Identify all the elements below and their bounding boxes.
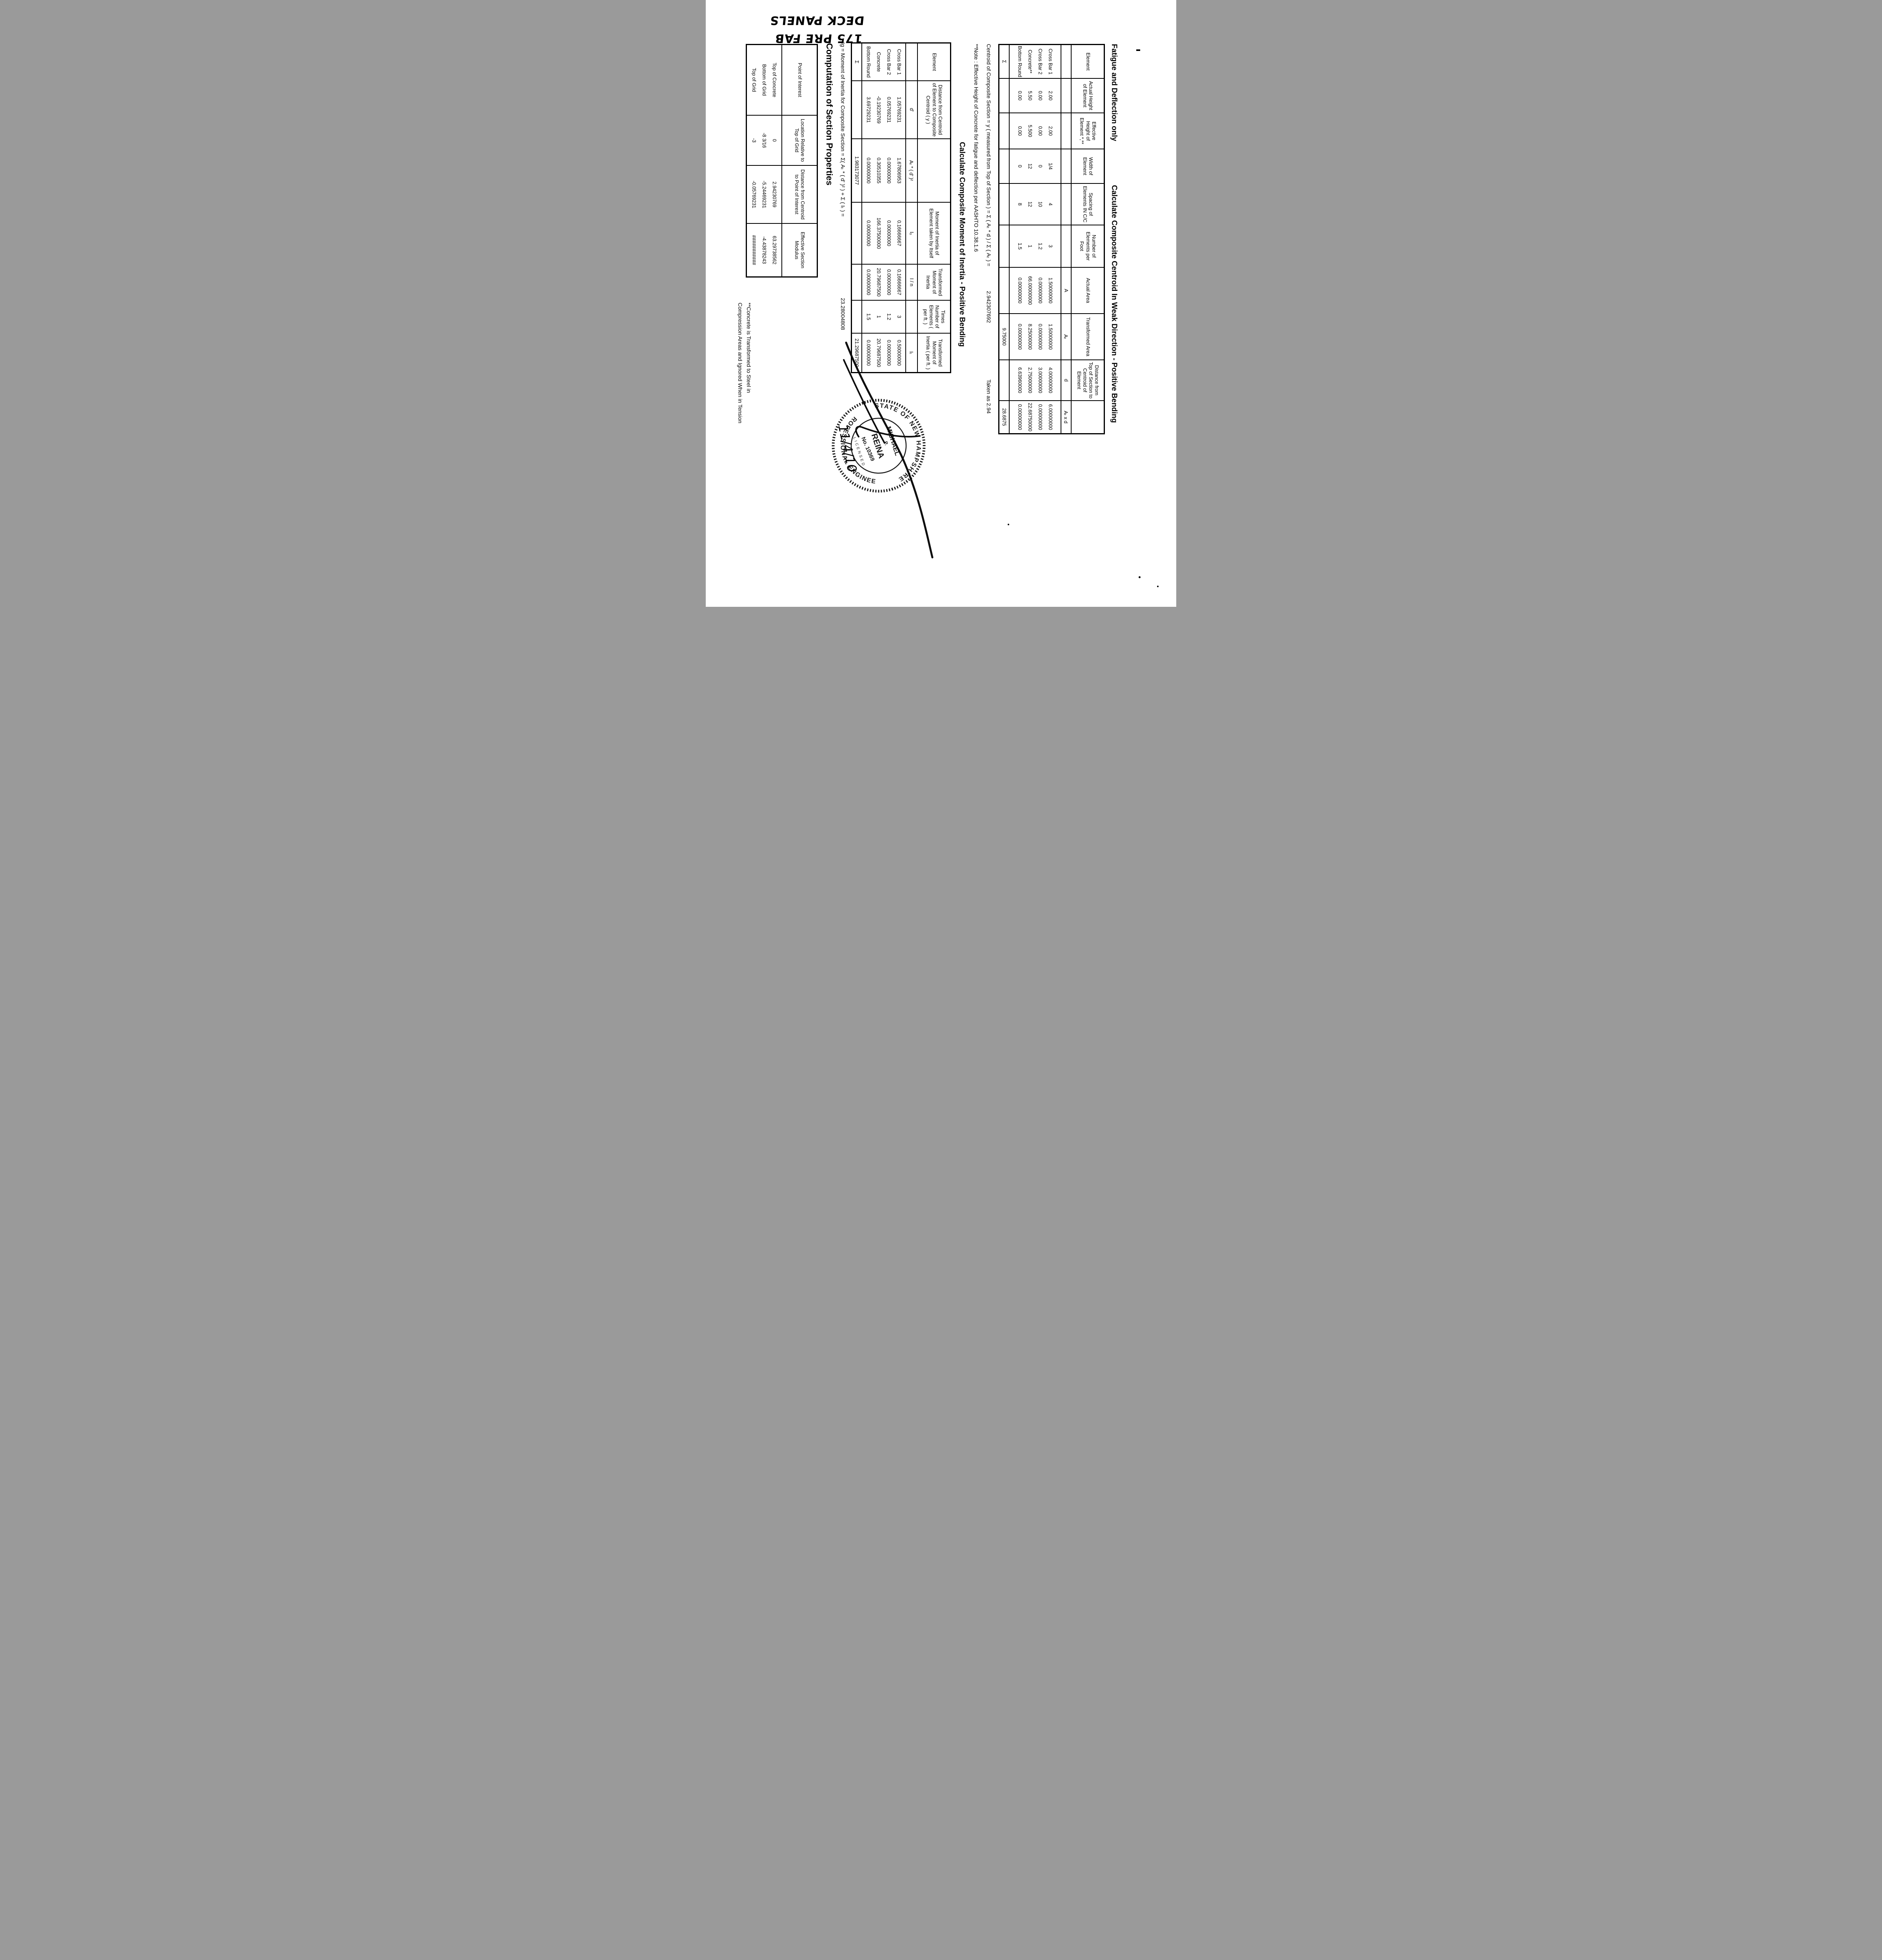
cell: 0.00 bbox=[1035, 113, 1045, 149]
t2-col-i-over-n: Transformed Moment of Inertia I / n 0.16… bbox=[852, 265, 950, 301]
cell: 3.00000000 bbox=[1035, 360, 1045, 400]
t3-col-distance: Distance from Centroid to Point of Inter… bbox=[747, 166, 817, 224]
svg-text:PROFESSIONAL ENGINEER: PROFESSIONAL ENGINEER bbox=[813, 337, 943, 493]
scan-speck bbox=[1139, 576, 1141, 578]
cell: 0.00000000 bbox=[1035, 314, 1045, 359]
data-cell: 3 1.2 1 1.5 bbox=[1009, 225, 1061, 267]
cell: 0.00 bbox=[1015, 113, 1025, 149]
cell: 6.00000000 bbox=[1045, 401, 1055, 433]
column-header: Width of Element bbox=[1071, 149, 1104, 183]
cell: 2.00 bbox=[1045, 79, 1055, 113]
data-cell: 2.00 0.00 5.500 0.00 bbox=[1009, 113, 1061, 149]
cell: 66.00000000 bbox=[1025, 268, 1035, 313]
cell: 0.00000000 bbox=[1015, 268, 1025, 313]
cell: 0.16666667 bbox=[894, 265, 904, 300]
title-section-properties: Computation of Section Properties bbox=[824, 43, 834, 185]
t3-col-location: Location Relative to Top of Grid 0 -8 3/… bbox=[747, 116, 817, 166]
t1-col-element: Element Cross Bar 1 Cross Bar 2 Concrete… bbox=[999, 45, 1104, 79]
sigma-cell bbox=[852, 265, 861, 300]
cell: 1.2 bbox=[884, 301, 894, 333]
column-header: Actual Height of Element bbox=[1071, 79, 1104, 113]
cell: 0.16666667 bbox=[894, 203, 904, 264]
cell: 0 bbox=[769, 116, 779, 165]
data-cell: 1.67806953 0.00000000 0.30510355 0.00000… bbox=[861, 139, 905, 202]
symbol-cell: d' bbox=[905, 81, 917, 138]
data-cell: 1/4 0 12 0 bbox=[1009, 149, 1061, 183]
t1-col-spacing: Spacing of Elements IN C/C 4 10 12 8 bbox=[999, 184, 1104, 225]
column-header: Element bbox=[1071, 45, 1104, 78]
cell: Concrete** bbox=[1025, 45, 1035, 78]
cell: 3 bbox=[894, 301, 904, 333]
t1-col-effective-height: Effective Height of Element *,** 2.00 0.… bbox=[999, 113, 1104, 149]
cell: 0.05769231 bbox=[884, 81, 894, 138]
t1-col-width: Width of Element 1/4 0 12 0 bbox=[999, 149, 1104, 184]
cell: Top of Concrete bbox=[769, 45, 779, 115]
cell: 1.5 bbox=[1015, 225, 1025, 267]
ig-equation: Ig = Moment of Inertia for Composite Sec… bbox=[839, 42, 846, 217]
cell: Concrete bbox=[874, 44, 884, 80]
symbol-cell bbox=[1061, 113, 1071, 149]
cell: 20.79687500 bbox=[874, 265, 884, 300]
column-header: Moment of Inertia of Element taken by It… bbox=[917, 203, 950, 264]
cell: 0.00000000 bbox=[884, 265, 894, 300]
title-fatigue: Fatigue and Deflection only bbox=[1110, 44, 1118, 141]
cell: 8 bbox=[1015, 184, 1025, 225]
t1-col-number-per-foot: Number of Elements per Foot 3 1.2 1 1.5 bbox=[999, 225, 1104, 268]
note-line-1: 175 PRE FAB bbox=[708, 29, 863, 47]
sigma-cell bbox=[999, 360, 1009, 400]
handwritten-note: 175 PRE FAB DECK PANELS bbox=[708, 11, 865, 47]
sigma-cell: 9.75000 bbox=[999, 314, 1009, 359]
cell: 0.00000000 bbox=[863, 265, 874, 300]
sigma-cell: Σ bbox=[999, 45, 1009, 78]
cell: 0.00 bbox=[1015, 79, 1025, 113]
sigma-cell bbox=[999, 268, 1009, 313]
data-cell: 4 10 12 8 bbox=[1009, 184, 1061, 225]
concrete-footnote-line2: Compression Areas and Ignored When in Te… bbox=[737, 303, 743, 423]
cell: 0.00000000 bbox=[884, 203, 894, 264]
data-cell: 1.50000000 0.00000000 8.25000000 0.00000… bbox=[1009, 314, 1061, 359]
symbol-cell bbox=[905, 44, 917, 80]
cell: 1.50000000 bbox=[1045, 314, 1055, 359]
cell: Cross Bar 2 bbox=[1035, 45, 1045, 78]
cell: 0.00000000 bbox=[1015, 401, 1025, 433]
note-line-2: DECK PANELS bbox=[710, 11, 865, 29]
cell: Bottom of Grid bbox=[759, 45, 769, 115]
cell: 0 bbox=[1015, 149, 1025, 183]
data-cell: 0.16666667 0.00000000 166.37500000 0.000… bbox=[861, 203, 905, 264]
table-composite-centroid: Element Cross Bar 1 Cross Bar 2 Concrete… bbox=[998, 44, 1105, 434]
data-cell: 6.00000000 0.00000000 22.68750000 0.0000… bbox=[1009, 401, 1061, 433]
cell: 0.00000000 bbox=[1035, 401, 1045, 433]
data-cell: 0 -8 3/16 -3 bbox=[747, 116, 781, 165]
cell: 0.00000000 bbox=[1015, 314, 1025, 359]
sigma-cell bbox=[852, 301, 861, 333]
cell: 1.05769231 bbox=[894, 81, 904, 138]
data-cell: 0.16666667 0.00000000 20.79687500 0.0000… bbox=[861, 265, 905, 300]
cell: 1.50000000 bbox=[1045, 268, 1055, 313]
cell: 1 bbox=[874, 301, 884, 333]
column-header: Transformed Moment of Inertia bbox=[917, 265, 950, 300]
data-cell: 1.50000000 0.00000000 66.00000000 0.0000… bbox=[1009, 268, 1061, 313]
column-header: Distance from Top of Section to Centroid… bbox=[1071, 360, 1104, 400]
cell: -0.05769231 bbox=[749, 166, 759, 223]
cell: Cross Bar 1 bbox=[1045, 45, 1055, 78]
cell: -3 bbox=[749, 116, 759, 165]
column-header: Times Number of Elements ( per ft. ) bbox=[917, 301, 950, 333]
t1-col-actual-area: Actual Area A 1.50000000 0.00000000 66.0… bbox=[999, 268, 1104, 314]
t3-col-section-modulus: Effective Section Modulus 63.29738562 -4… bbox=[747, 224, 817, 276]
cell: 4.00000000 bbox=[1045, 360, 1055, 400]
ig-value: 23.28004808 bbox=[840, 298, 846, 330]
cell: 1/4 bbox=[1045, 149, 1055, 183]
t2-col-element: Element Cross Bar 1 Cross Bar 2 Concrete… bbox=[852, 44, 950, 81]
cell: Bottom Round bbox=[863, 44, 874, 80]
symbol-cell bbox=[1061, 225, 1071, 267]
column-header: Distance from Centroid to Point of Inter… bbox=[781, 166, 817, 223]
cell: -8 3/16 bbox=[759, 116, 769, 165]
scan-speck bbox=[1157, 586, 1159, 587]
cell: 22.68750000 bbox=[1025, 401, 1035, 433]
t2-col-io: Moment of Inertia of Element taken by It… bbox=[852, 203, 950, 265]
cell: 3.69729231 bbox=[863, 81, 874, 138]
cell: 0.00000000 bbox=[863, 203, 874, 264]
scan-speck bbox=[1008, 524, 1009, 525]
data-cell: Cross Bar 1 Cross Bar 2 Concrete Bottom … bbox=[861, 44, 905, 80]
cell: 0.00 bbox=[1035, 79, 1045, 113]
sigma-cell bbox=[999, 149, 1009, 183]
sigma-cell bbox=[852, 203, 861, 264]
symbol-cell: Iₒ bbox=[905, 203, 917, 264]
seal-profession-text: PROFESSIONAL ENGINEER bbox=[813, 337, 943, 493]
title-inertia-calc: Calculate Composite Moment of Inertia - … bbox=[957, 142, 966, 347]
column-header: Spacing of Elements IN C/C bbox=[1071, 184, 1104, 225]
centroid-taken-as: Taken as 2.94 bbox=[986, 379, 992, 414]
data-cell: 63.29738562 -4.43878243 ########### bbox=[747, 224, 781, 276]
cell: 1.67806953 bbox=[894, 139, 904, 202]
cell: Cross Bar 1 bbox=[894, 44, 904, 80]
column-header: Effective Height of Element *,** bbox=[1071, 113, 1104, 149]
t1-col-transformed-area: Transformed Area Aₜ 1.50000000 0.0000000… bbox=[999, 314, 1104, 360]
cell: 12 bbox=[1025, 149, 1035, 183]
cell: 5.500 bbox=[1025, 113, 1035, 149]
column-header: Location Relative to Top of Grid bbox=[781, 116, 817, 165]
data-cell: Top of Concrete Bottom of Grid Top of Gr… bbox=[747, 45, 781, 115]
cell: 2.00 bbox=[1045, 113, 1055, 149]
data-cell: 1.05769231 0.05769231 -0.19230769 3.6972… bbox=[861, 81, 905, 138]
cell: 0.00000000 bbox=[863, 139, 874, 202]
column-header: Transformed Area bbox=[1071, 314, 1104, 359]
cell: 166.37500000 bbox=[874, 203, 884, 264]
sigma-cell: 28.6875 bbox=[999, 401, 1009, 433]
data-cell: 2.00 0.00 5.50 0.00 bbox=[1009, 79, 1061, 113]
t2-col-times-number: Times Number of Elements ( per ft. ) 3 1… bbox=[852, 301, 950, 334]
table-moment-of-inertia: Element Cross Bar 1 Cross Bar 2 Concrete… bbox=[851, 42, 951, 373]
symbol-cell bbox=[1061, 79, 1071, 113]
cell: 0.00000000 bbox=[1035, 268, 1045, 313]
column-header: Point of Interest bbox=[781, 45, 817, 115]
column-header: Actual Area bbox=[1071, 268, 1104, 313]
t2-col-at-dprime-sq: Aₜ * ( d' )² 1.67806953 0.00000000 0.305… bbox=[852, 139, 950, 203]
cell: 4 bbox=[1045, 184, 1055, 225]
cell: ########### bbox=[749, 224, 759, 276]
cell: 0 bbox=[1035, 149, 1045, 183]
symbol-cell: A bbox=[1061, 268, 1071, 313]
cell: 0.30510355 bbox=[874, 139, 884, 202]
cell: 6.63960000 bbox=[1015, 360, 1025, 400]
sigma-cell bbox=[999, 113, 1009, 149]
concrete-footnote-line1: **Concrete is Transformed to Steel in bbox=[746, 303, 752, 393]
column-header: Effective Section Modulus bbox=[781, 224, 817, 276]
t1-col-distance-d: Distance from Top of Section to Centroid… bbox=[999, 360, 1104, 401]
landscape-spreadsheet: Fatigue and Deflection only Calculate Co… bbox=[706, 0, 1176, 607]
engineer-stamp: STATE OF NEW HAMPSHIRE PROFESSIONAL ENGI… bbox=[813, 337, 943, 564]
symbol-cell: Aₜ * ( d' )² bbox=[905, 139, 917, 202]
cell: 63.29738562 bbox=[769, 224, 779, 276]
scanned-calc-sheet: Fatigue and Deflection only Calculate Co… bbox=[706, 0, 1176, 607]
sigma-cell bbox=[999, 225, 1009, 267]
cell: -5.24469231 bbox=[759, 166, 769, 223]
sigma-cell: Σ bbox=[852, 44, 861, 80]
data-cell: 2.94230769 -5.24469231 -0.05769231 bbox=[747, 166, 781, 223]
table-section-properties: Point of Interest Top of Concrete Bottom… bbox=[746, 44, 818, 278]
t1-col-actual-height: Actual Height of Element 2.00 0.00 5.50 … bbox=[999, 79, 1104, 113]
cell: 0.00000000 bbox=[884, 139, 894, 202]
sigma-cell bbox=[852, 81, 861, 138]
t1-col-at-x-d: Aₜ x d 6.00000000 0.00000000 22.68750000… bbox=[999, 401, 1104, 433]
data-cell: 4.00000000 3.00000000 2.75000000 6.63960… bbox=[1009, 360, 1061, 400]
seal: STATE OF NEW HAMPSHIRE PROFESSIONAL ENGI… bbox=[813, 337, 943, 503]
column-header: Element bbox=[917, 44, 950, 80]
sigma-cell: 1.983173077 bbox=[852, 139, 861, 202]
cell: 1 bbox=[1025, 225, 1035, 267]
cell: 12 bbox=[1025, 184, 1035, 225]
centroid-value: 2.942307692 bbox=[986, 291, 992, 323]
column-header: Number of Elements per Foot bbox=[1071, 225, 1104, 267]
cell: 10 bbox=[1035, 184, 1045, 225]
scan-speck bbox=[1136, 49, 1140, 51]
column-header bbox=[917, 139, 950, 202]
symbol-cell: Aₜ x d bbox=[1061, 401, 1071, 433]
cell: Bottom Round bbox=[1015, 45, 1025, 78]
symbol-cell bbox=[1061, 149, 1071, 183]
cell: 2.94230769 bbox=[769, 166, 779, 223]
symbol-cell bbox=[1061, 184, 1071, 225]
t2-col-d-prime: Distance from Centroid of Element to Com… bbox=[852, 81, 950, 139]
title-centroid-calc: Calculate Composite Centroid In Weak Dir… bbox=[1110, 185, 1118, 423]
sigma-cell bbox=[999, 184, 1009, 225]
symbol-cell: d bbox=[1061, 360, 1071, 400]
sigma-cell bbox=[999, 79, 1009, 113]
cell: -0.19230769 bbox=[874, 81, 884, 138]
column-header bbox=[1071, 401, 1104, 433]
t3-col-point-of-interest: Point of Interest Top of Concrete Bottom… bbox=[747, 45, 817, 116]
cell: 1.2 bbox=[1035, 225, 1045, 267]
cell: 8.25000000 bbox=[1025, 314, 1035, 359]
cell: 5.50 bbox=[1025, 79, 1035, 113]
symbol-cell: Aₜ bbox=[1061, 314, 1071, 359]
cell: 3 bbox=[1045, 225, 1055, 267]
centroid-equation: Centroid of Composite Section = y ( meas… bbox=[985, 44, 992, 266]
cell: -4.43878243 bbox=[759, 224, 769, 276]
column-header: Distance from Centroid of Element to Com… bbox=[917, 81, 950, 138]
cell: 2.75000000 bbox=[1025, 360, 1035, 400]
symbol-cell bbox=[905, 301, 917, 333]
symbol-cell: I / n bbox=[905, 265, 917, 300]
symbol-cell bbox=[1061, 45, 1071, 78]
cell: 1.5 bbox=[863, 301, 874, 333]
data-cell: 3 1.2 1 1.5 bbox=[861, 301, 905, 333]
cell: Top of Grid bbox=[749, 45, 759, 115]
aashto-note: **Note : Effective Height of Concrete fo… bbox=[973, 44, 979, 252]
cell: Cross Bar 2 bbox=[884, 44, 894, 80]
data-cell: Cross Bar 1 Cross Bar 2 Concrete** Botto… bbox=[1009, 45, 1061, 78]
